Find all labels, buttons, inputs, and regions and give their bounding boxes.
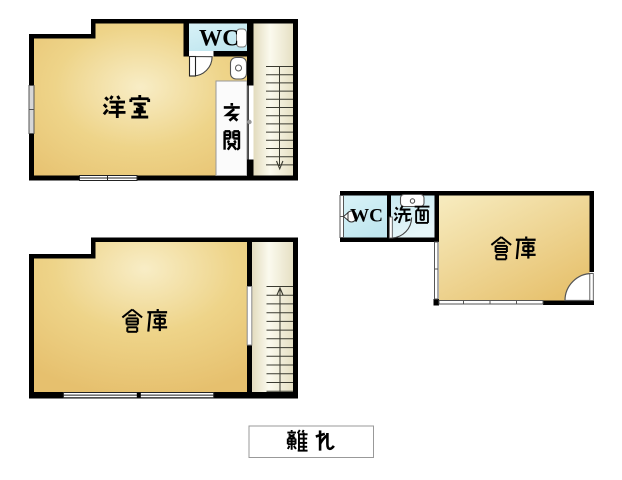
svg-text:WC: WC [199, 26, 239, 52]
svg-text:WC: WC [350, 206, 383, 227]
